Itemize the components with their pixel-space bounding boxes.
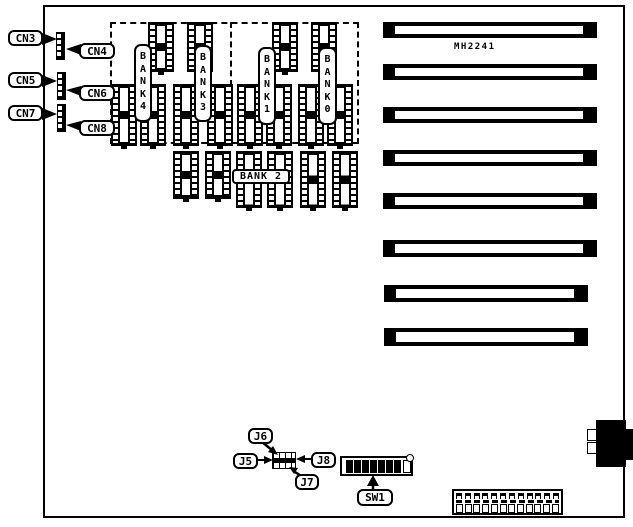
j7-label: J7 (295, 474, 319, 490)
cn7-label: CN7 (8, 105, 43, 121)
j5-label: J5 (233, 453, 258, 469)
sw1-label: SW1 (357, 489, 393, 506)
j6-label: J6 (248, 428, 273, 444)
cn8-label: CN8 (79, 120, 115, 136)
cn3-label: CN3 (8, 30, 43, 46)
motherboard-diagram: MH2241 BANK4 BANK3 BANK1 BANK0 BANK 2 CN… (0, 0, 633, 527)
cn4-label: CN4 (79, 43, 115, 59)
cn5-label: CN5 (8, 72, 43, 88)
j8-label: J8 (311, 452, 336, 468)
leader-lines (0, 0, 633, 527)
cn6-label: CN6 (79, 85, 115, 101)
